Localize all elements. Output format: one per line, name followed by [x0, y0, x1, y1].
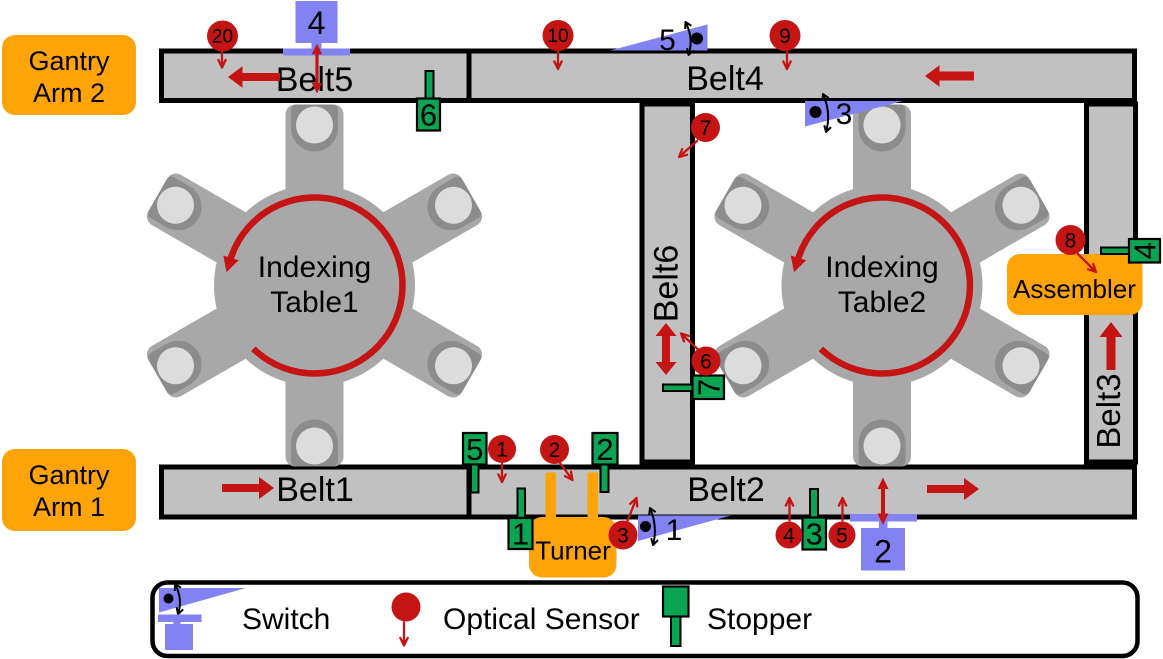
svg-text:Table2: Table2	[838, 286, 926, 319]
svg-text:6: 6	[700, 351, 712, 374]
svg-text:7: 7	[700, 117, 712, 140]
svg-text:Arm 2: Arm 2	[33, 78, 105, 108]
svg-text:Gantry: Gantry	[28, 460, 110, 490]
svg-text:Assembler: Assembler	[1013, 274, 1136, 304]
svg-text:Indexing: Indexing	[258, 251, 371, 284]
svg-text:1: 1	[512, 517, 529, 552]
svg-text:5: 5	[659, 24, 676, 57]
svg-text:3: 3	[836, 98, 853, 131]
svg-text:9: 9	[779, 25, 791, 48]
svg-text:Stopper: Stopper	[707, 603, 812, 636]
svg-text:3: 3	[806, 517, 823, 552]
svg-text:1: 1	[496, 439, 508, 462]
svg-text:Optical Sensor: Optical Sensor	[443, 603, 640, 636]
svg-text:4: 4	[308, 5, 326, 41]
svg-text:5: 5	[466, 432, 483, 467]
svg-text:Table1: Table1	[270, 286, 358, 319]
svg-text:Belt6: Belt6	[648, 245, 686, 323]
svg-text:10: 10	[547, 26, 568, 47]
svg-text:5: 5	[836, 525, 848, 548]
svg-text:2: 2	[549, 439, 561, 462]
svg-text:Gantry: Gantry	[28, 46, 110, 76]
svg-text:4: 4	[783, 525, 795, 548]
svg-text:Switch: Switch	[242, 603, 330, 636]
svg-text:2: 2	[874, 534, 892, 570]
svg-text:7: 7	[691, 379, 726, 396]
svg-text:20: 20	[212, 27, 233, 48]
svg-text:4: 4	[1128, 242, 1163, 259]
svg-text:2: 2	[596, 432, 613, 467]
svg-text:Arm 1: Arm 1	[33, 492, 105, 522]
svg-text:1: 1	[666, 514, 683, 547]
svg-text:Belt4: Belt4	[686, 60, 764, 98]
svg-text:8: 8	[1065, 230, 1077, 253]
svg-text:3: 3	[617, 525, 629, 548]
svg-text:Belt3: Belt3	[1090, 373, 1127, 448]
svg-text:Turner: Turner	[535, 536, 611, 566]
svg-text:6: 6	[420, 98, 437, 133]
svg-text:Belt2: Belt2	[687, 471, 765, 509]
svg-text:Belt1: Belt1	[276, 471, 354, 509]
svg-text:Belt5: Belt5	[276, 61, 354, 99]
svg-text:Indexing: Indexing	[825, 251, 938, 284]
